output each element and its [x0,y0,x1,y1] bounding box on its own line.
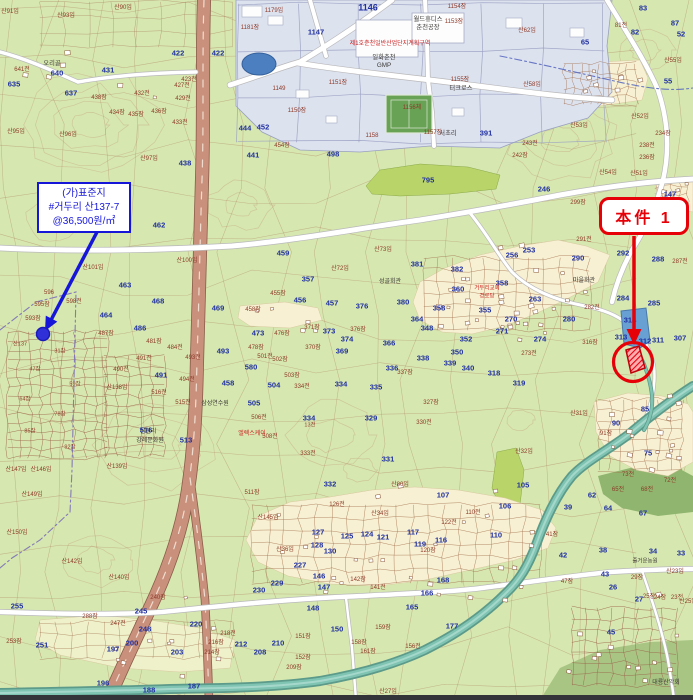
building [375,494,380,499]
building [475,319,478,322]
building [121,660,126,665]
standard-lot-line3: @36,500원/㎡ [39,215,129,229]
building [608,645,614,650]
building [670,449,673,452]
building [611,446,614,449]
building [323,590,328,594]
building [534,268,539,272]
building [65,50,71,55]
building [281,551,285,554]
building [438,324,443,328]
building [23,73,29,78]
building [466,299,471,303]
building [518,338,522,342]
building [499,294,505,299]
building [528,303,534,308]
building [428,582,433,586]
building [501,325,505,328]
building [529,544,534,548]
building [153,96,157,99]
building [519,243,525,248]
building [211,626,216,630]
subject-callout[interactable]: 本件 1 [599,197,689,235]
building [466,277,470,281]
building [216,657,221,661]
building [503,598,508,602]
building [180,674,185,678]
building [560,271,564,275]
building [636,666,641,670]
building [116,658,119,661]
building [409,576,412,579]
building [565,299,569,302]
map-canvas [0,0,693,700]
building [461,277,465,281]
building [437,593,441,596]
building [499,566,504,570]
building [498,245,503,250]
building [447,306,450,309]
map-edge-strip [0,695,693,700]
building [46,74,52,79]
building [592,70,595,73]
building [676,401,682,406]
building [277,513,281,517]
building [455,289,459,293]
building [313,329,317,333]
building [184,596,188,599]
standard-lot-callout[interactable]: (가)표준지 #거두리 산137-7 @36,500원/㎡ [37,182,131,233]
building [508,325,513,329]
building [114,648,118,651]
building [523,322,528,326]
building [519,585,523,589]
building [627,665,631,668]
building [656,451,659,454]
building [369,559,373,562]
standard-lot-line2: #거두리 산137-7 [39,201,129,215]
building [657,430,663,435]
building [434,543,437,546]
building [530,530,535,534]
building [661,190,667,195]
building [514,311,519,315]
reservoir [621,308,650,348]
building [627,453,633,458]
pond [242,53,276,75]
building [398,483,404,488]
building [148,639,152,643]
building [566,669,571,673]
building [676,188,680,192]
building [493,489,498,493]
standard-lot-line1: (가)표준지 [39,187,129,201]
building [512,566,517,570]
building [270,307,274,310]
sports-field [386,95,432,133]
building [340,582,343,585]
building [354,558,358,561]
building [465,321,470,325]
building [638,78,643,83]
building [462,521,465,524]
building [300,328,305,333]
building [596,652,601,656]
building [609,412,614,416]
building [618,75,624,80]
building [677,456,681,460]
building [60,63,65,67]
building [468,595,473,599]
building [583,89,587,93]
building [627,429,633,434]
building [630,434,634,437]
building [516,321,520,324]
building [592,656,597,660]
building [485,514,490,518]
building [675,634,679,637]
building [117,83,122,88]
building [577,632,582,636]
building [593,83,598,88]
building [667,394,672,398]
building [314,535,318,539]
building [649,467,655,472]
building [381,559,385,562]
building [304,545,308,548]
building [306,320,310,323]
building [449,288,453,291]
building [667,417,671,421]
building [615,88,620,92]
building [668,668,673,672]
building [643,679,648,683]
building [332,576,336,579]
building [587,76,592,80]
building [656,592,662,597]
building [436,304,441,308]
building [652,661,656,665]
building [685,182,688,185]
building [538,323,543,327]
building [552,307,556,310]
building [583,290,587,293]
building [670,443,675,447]
building [167,642,170,645]
building [533,309,538,314]
cadastral-map-view: 산91임산90임산93임641전오리골640635637431422422438… [0,0,693,700]
building [543,331,547,334]
subject-label: 本件 1 [615,204,672,228]
building [499,300,505,305]
building [255,309,259,312]
